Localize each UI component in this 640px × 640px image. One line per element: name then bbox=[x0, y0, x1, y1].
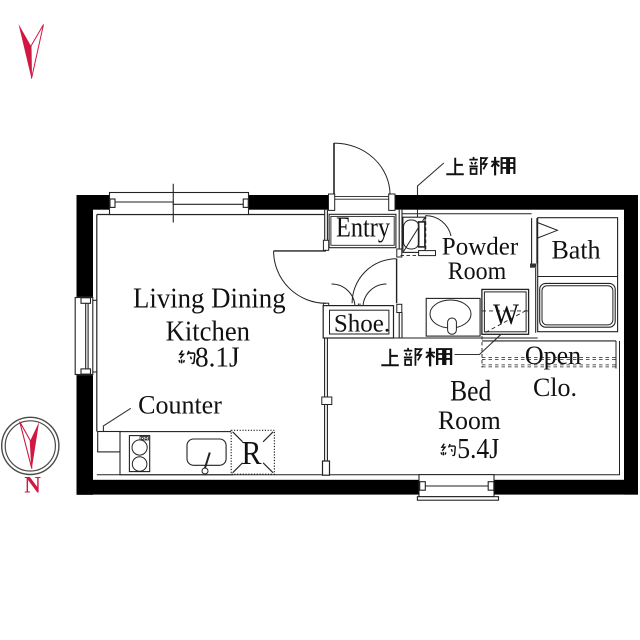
svg-text:Counter: Counter bbox=[138, 391, 222, 420]
svg-text:R: R bbox=[242, 435, 262, 472]
svg-text:8.1J: 8.1J bbox=[195, 342, 240, 374]
svg-text:W: W bbox=[493, 298, 520, 331]
svg-text:Clo.: Clo. bbox=[533, 373, 577, 402]
svg-text:Open: Open bbox=[525, 341, 581, 370]
svg-text:Living Dining: Living Dining bbox=[133, 284, 286, 315]
svg-text:5.4J: 5.4J bbox=[457, 434, 499, 465]
svg-text:Entry: Entry bbox=[336, 212, 390, 244]
svg-text:Powder: Powder bbox=[442, 234, 519, 261]
svg-text:Room: Room bbox=[438, 406, 501, 435]
svg-text:Bath: Bath bbox=[551, 236, 600, 265]
svg-text:Shoe.: Shoe. bbox=[334, 311, 390, 338]
svg-text:Bed: Bed bbox=[450, 375, 491, 408]
svg-text:N: N bbox=[24, 473, 41, 498]
svg-text:Room: Room bbox=[448, 258, 507, 285]
